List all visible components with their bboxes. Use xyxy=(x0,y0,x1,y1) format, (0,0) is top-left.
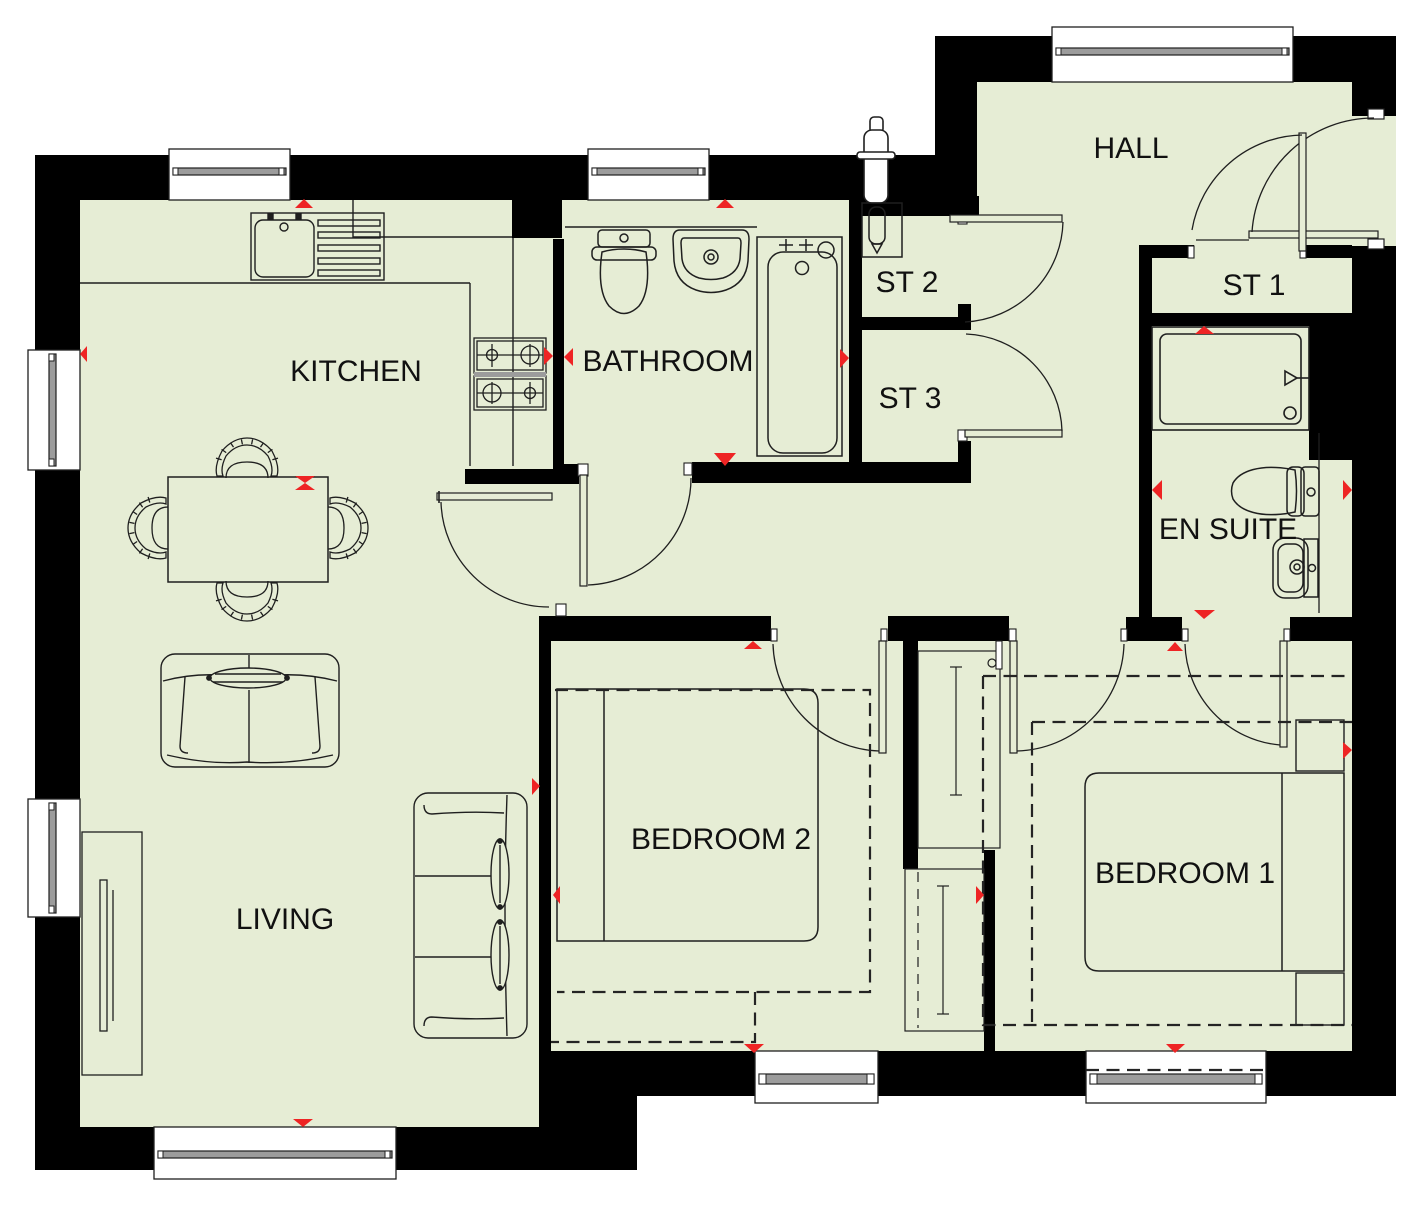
svg-text:BEDROOM 1: BEDROOM 1 xyxy=(1095,857,1275,890)
svg-text:ST 2: ST 2 xyxy=(876,266,939,299)
svg-text:EN SUITE: EN SUITE xyxy=(1159,513,1297,546)
svg-text:BATHROOM: BATHROOM xyxy=(582,345,753,378)
svg-text:ST 1: ST 1 xyxy=(1223,269,1286,302)
svg-text:KITCHEN: KITCHEN xyxy=(290,355,422,388)
svg-text:BEDROOM 2: BEDROOM 2 xyxy=(631,823,811,856)
svg-text:HALL: HALL xyxy=(1093,132,1168,165)
svg-text:ST 3: ST 3 xyxy=(879,382,942,415)
svg-text:LIVING: LIVING xyxy=(236,903,334,936)
